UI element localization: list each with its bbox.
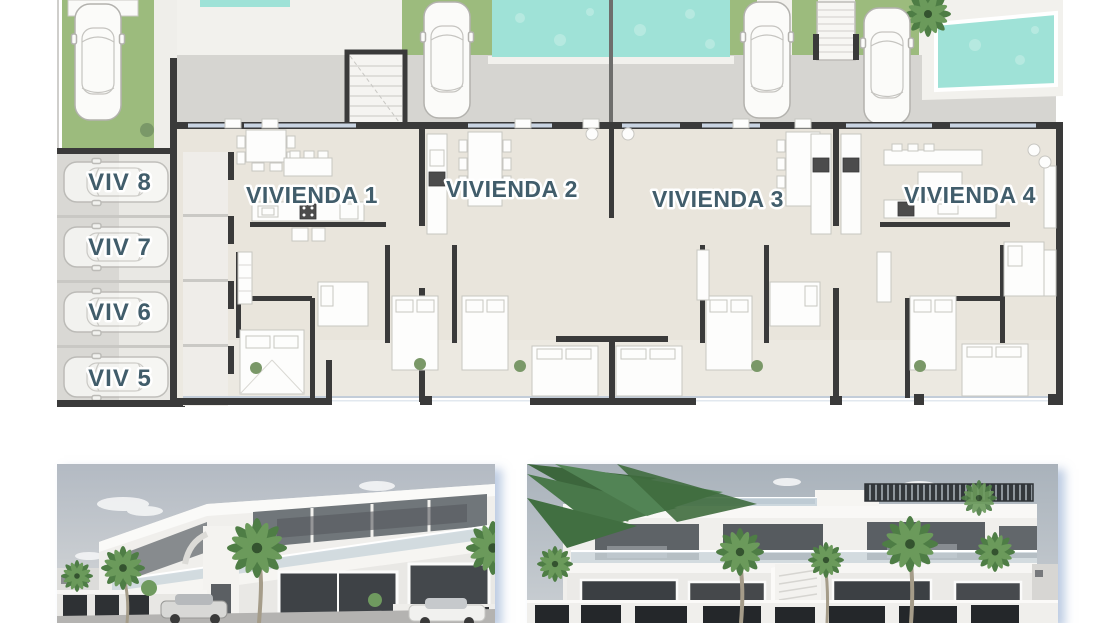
- parking-label-viv-6: VIV 6: [88, 299, 152, 326]
- car-icon: [861, 8, 914, 124]
- parking-label-viv-8: VIV 8: [88, 169, 152, 196]
- pool-top-left: [198, 0, 292, 14]
- parking-label-viv-5: VIV 5: [88, 365, 152, 392]
- exterior-render-left: [57, 464, 495, 623]
- parking-label-viv-7: VIV 7: [88, 234, 152, 261]
- unit-label-vivienda-3: VIVIENDA 3: [652, 186, 784, 212]
- car-icon: [72, 4, 125, 120]
- staircase-icon: [347, 52, 405, 130]
- car-icon: [741, 2, 794, 118]
- plot-boundary: [57, 0, 59, 153]
- unit-label-vivienda-2: VIVIENDA 2: [446, 176, 578, 202]
- unit-label-vivienda-1: VIVIENDA 1: [246, 182, 378, 208]
- parking-area: VIV 8 VIV 7 VIV 6 VIV 5: [57, 148, 185, 407]
- floor-plan: VIV 8 VIV 7 VIV 6 VIV 5: [0, 0, 1110, 446]
- exterior-render-right: [527, 464, 1058, 623]
- plant-icon: [140, 123, 154, 137]
- car-icon: [421, 2, 474, 118]
- brochure-page: VIV 8 VIV 7 VIV 6 VIV 5: [0, 0, 1110, 623]
- staircase-icon: [813, 2, 859, 60]
- unit-label-vivienda-4: VIVIENDA 4: [904, 182, 1036, 208]
- pool-divider-fence: [609, 0, 613, 122]
